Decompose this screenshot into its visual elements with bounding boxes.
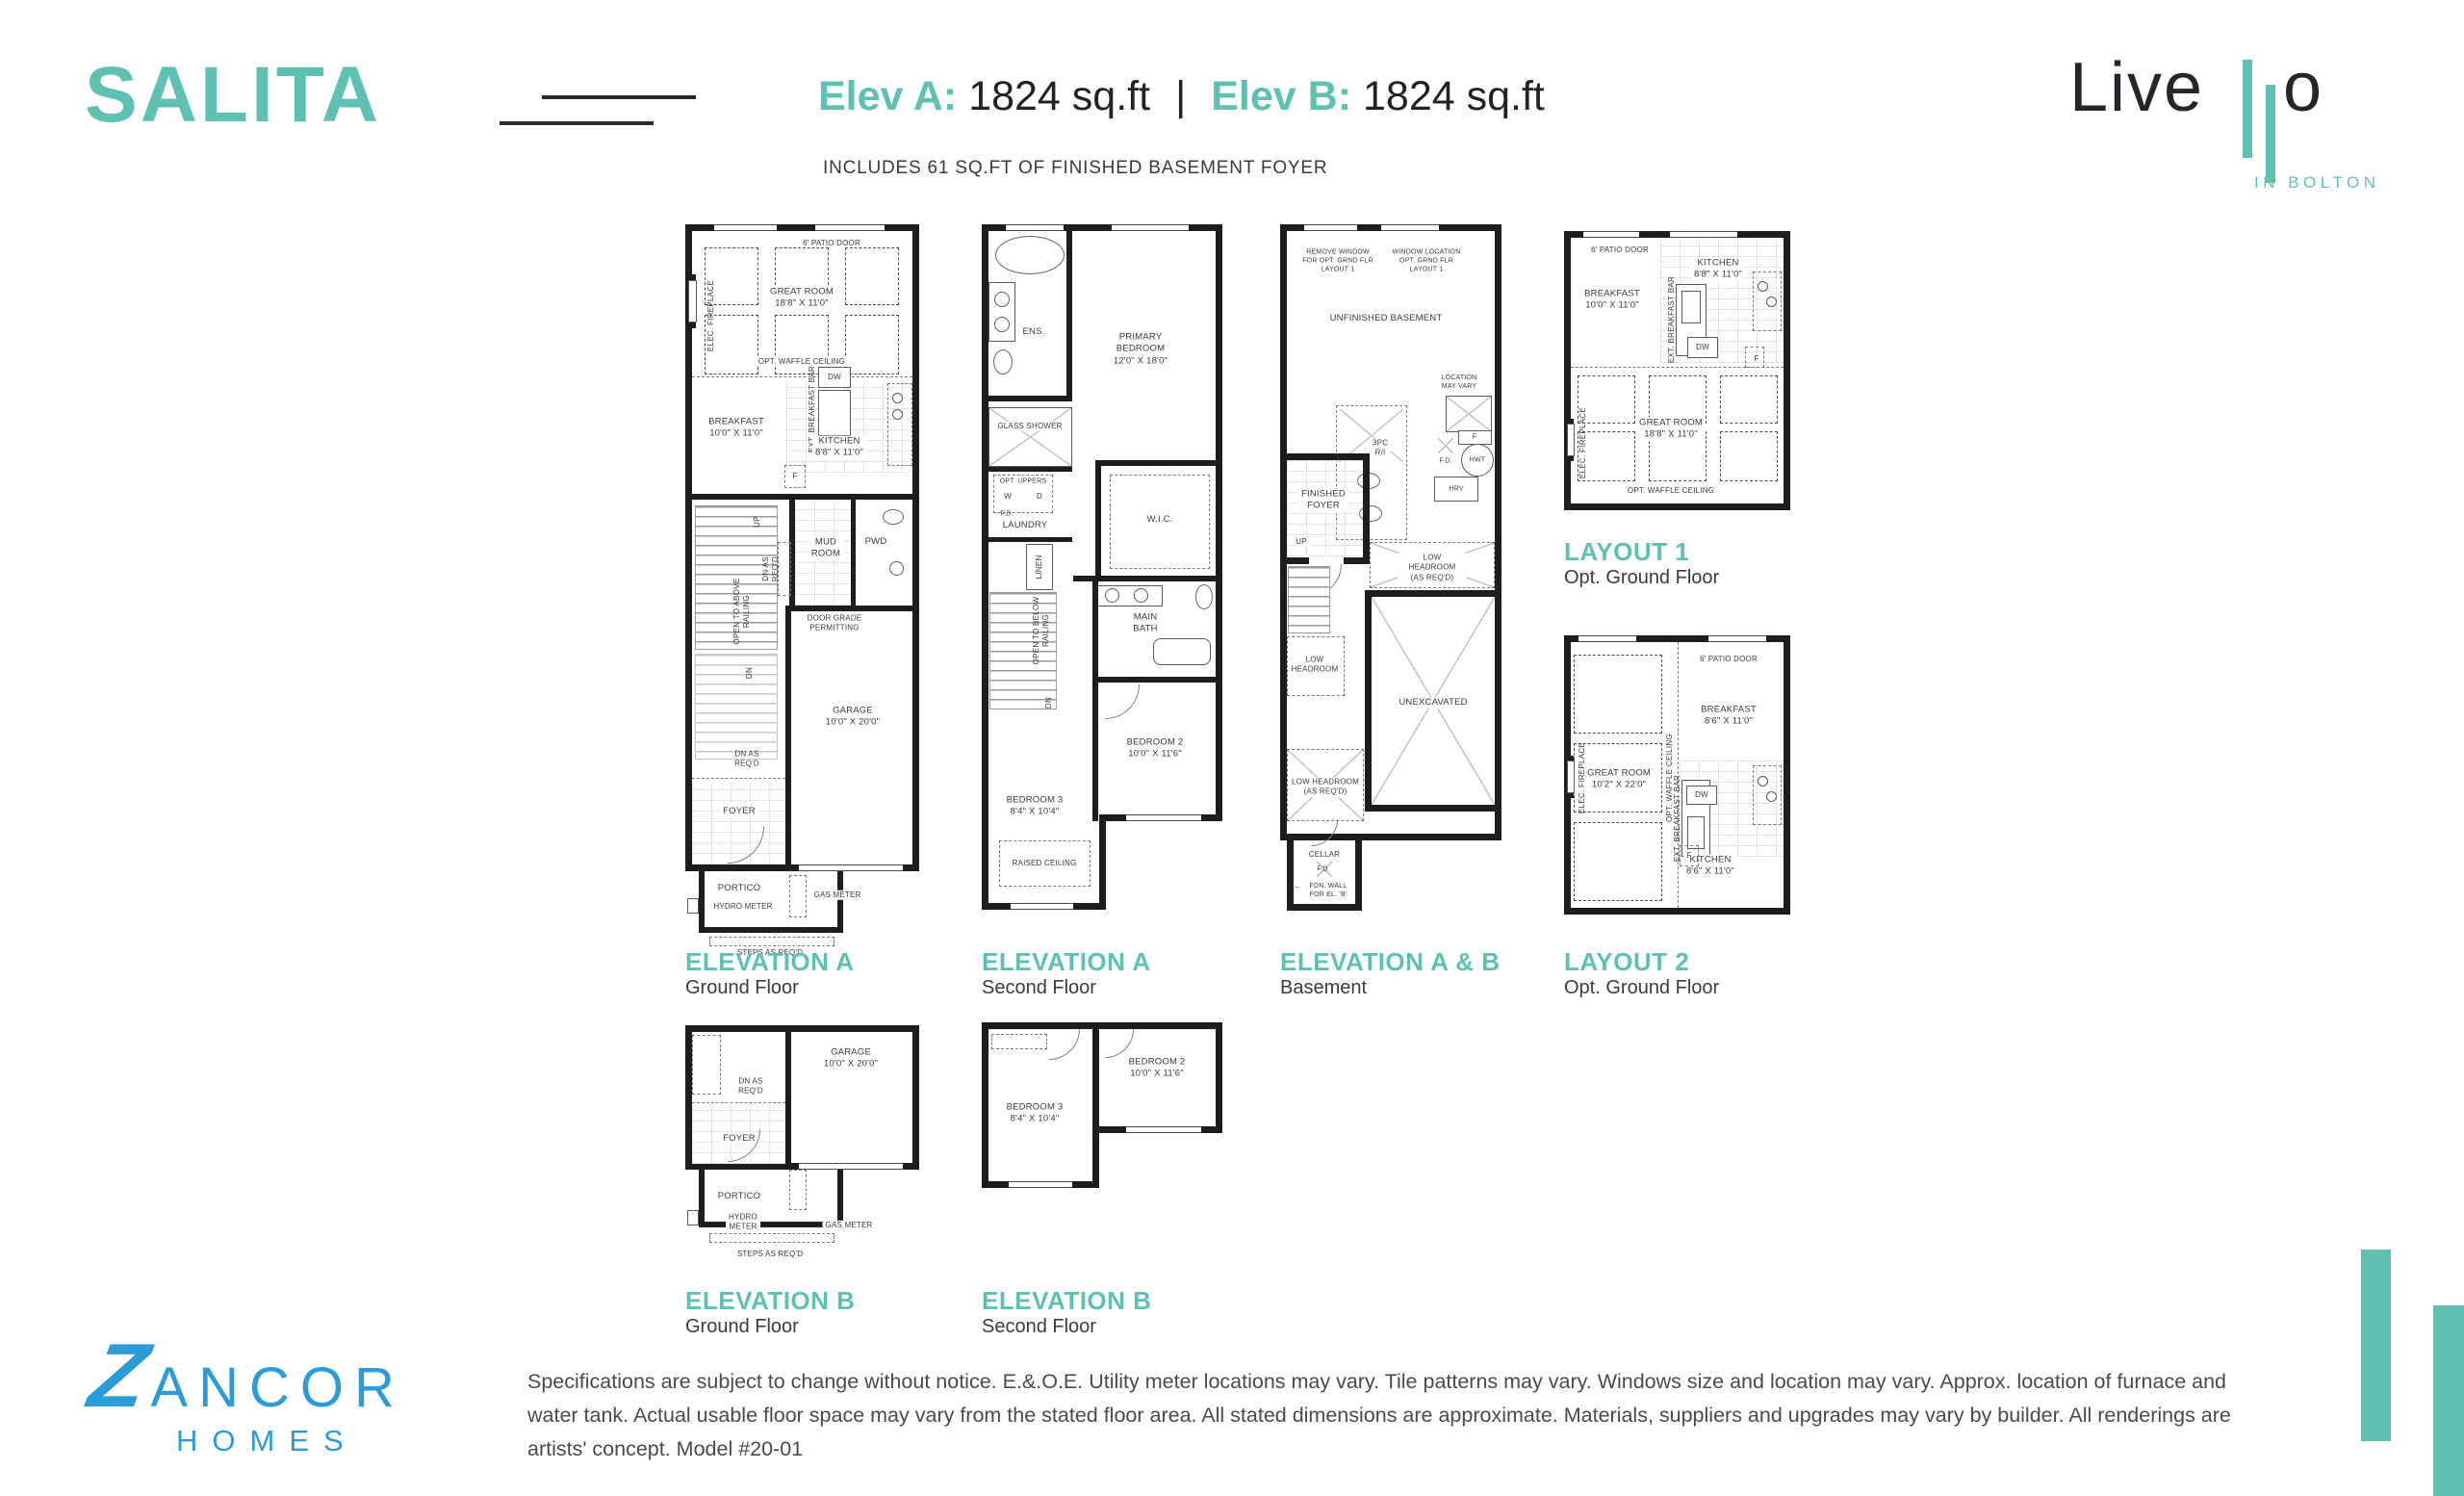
garage-door [799,864,903,871]
dn-label: DN [1044,697,1054,709]
interior-wall [785,1032,791,1170]
caption-basement-sub: Basement [1280,977,1367,999]
interior-wall [982,396,1072,401]
portico-label: PORTICO [718,883,761,894]
caption-layout2-title: LAYOUT 2 [1564,947,1689,977]
toilet-icon [883,509,904,525]
open-to-above-label: OPEN TO ABOVE RAILING [732,579,752,645]
window [1011,903,1073,910]
portico-label: PORTICO [718,1191,761,1202]
window [714,224,777,231]
sink-icon [994,317,1010,332]
left-arrow-icon: ← [1294,882,1301,891]
caption-b-second-sub: Second Floor [982,1316,1096,1338]
sink-icon [892,409,903,420]
waffle-ceiling-square [1649,375,1707,424]
elev-a-label: Elev A: [818,73,957,120]
elev-b-label: Elev B: [1211,73,1351,120]
glass-shower-box [988,407,1072,467]
gas-meter-label: GAS METER [811,890,864,900]
header-rule-bottom [500,121,654,125]
great-room-label: GREAT ROOM 18'8" X 11'0" [767,287,836,311]
caption-a-ground-sub: Ground Floor [685,977,799,999]
interior-wall [1095,460,1222,466]
steps-label: STEPS AS REQ'D [737,1250,803,1259]
bathtub-box [1153,638,1211,665]
hydro-meter-label: HYDRO METER [726,1213,760,1233]
window-location-note: WINDOW LOCATION OPT. GRND FLR LAYOUT 1 [1393,247,1461,273]
elev-b-value: 1824 sq.ft [1363,73,1545,120]
location-may-vary-note: LOCATION MAY VARY [1442,374,1477,391]
finished-foyer-label: FINISHED FOYER [1298,489,1348,513]
teal-accent-bar [2433,1305,2464,1496]
zancor-wordmark: Z ANCOR [91,1340,399,1410]
floorplan-layout1: 6' PATIO DOOR KITCHEN 8'8" X 11'0" BREAK… [1564,231,1790,510]
steps-dashed [709,1233,834,1243]
interior-wall [789,606,919,611]
gas-meter-label: GAS METER [823,1221,876,1230]
ensuite-label: ENS. [1023,326,1045,338]
floor-drain-label: F.D. [1317,864,1329,873]
livello-word-start: Live [2069,48,2204,127]
floorplan-basement: REMOVE WINDOW FOR OPT. GRND FLR LAYOUT 1… [1280,224,1501,917]
floorplan-elevation-a-second: ENS. PRIMARY BEDROOM 12'0" X 18'0" GLASS… [982,224,1222,924]
fridge-label: F [1754,354,1758,364]
waffle-ceiling-label: OPT. WAFFLE CEILING [1625,486,1717,496]
opt-uppers-label: OPT. UPPERS [1000,477,1047,485]
bedroom2-label: BEDROOM 2 10'0" X 11'6" [1129,1057,1186,1081]
interior-wall [982,467,1072,472]
linen-label: LINEN [1035,555,1044,579]
breakfast-bar-label: EXT. BREAKFAST BAR [1667,276,1677,363]
floorplan-elevation-b-ground: GARAGE 10'0" X 20'0" DN AS REQ'D FOYER P… [685,1025,919,1274]
sink-icon [1766,297,1777,307]
patio-door-label: 6' PATIO DOOR [1700,655,1758,664]
floorplan-layout2: 6' PATIO DOOR BREAKFAST 8'6" X 11'0" GRE… [1564,635,1790,915]
zancor-name: ANCOR [150,1365,404,1411]
zancor-z-icon: Z [86,1340,153,1410]
garage-label: GARAGE 10'0" X 20'0" [826,706,880,730]
elec-fireplace-label: ELEC. FIREPLACE [1578,407,1588,478]
bath-rough-in-label: 3PC R/I [1370,439,1391,459]
elec-fireplace-label: ELEC. FIREPLACE [1578,742,1587,813]
livello-logo: Live o IN BOLTON [2069,48,2377,202]
sink-icon [1758,281,1768,292]
window [1112,224,1189,231]
dryer-label: D [1037,492,1042,502]
unfinished-basement-label: UNFINISHED BASEMENT [1330,313,1443,324]
foyer-label: FOYER [720,806,758,817]
caption-b-ground-title: ELEVATION B [685,1286,855,1316]
sink-icon [892,393,903,403]
unexcavated-label: UNEXCAVATED [1396,697,1470,709]
toilet-icon [1195,584,1213,609]
fireplace-box [1567,424,1575,456]
caption-a-second-title: ELEVATION A [982,947,1150,977]
foyer-wall [1280,453,1370,460]
foyer-wall [1344,557,1370,564]
laundry-label: LAUNDRY [1000,520,1051,531]
great-room-label: GREAT ROOM 18'8" X 11'0" [1636,418,1706,442]
pwd-label: PWD [865,536,887,548]
floor-drain-label: F.D. [1000,509,1013,518]
waffle-ceiling-square [705,315,758,374]
closet-dashed [991,1034,1047,1049]
caption-layout1-sub: Opt. Ground Floor [1564,567,1719,589]
stairs [1288,566,1330,633]
exterior-wall [982,224,988,910]
dn-label: DN [745,667,755,679]
breakfast-label: BREAKFAST 10'0" X 11'0" [708,417,764,441]
dn-as-reqd-label: DN AS REQ'D [761,556,781,581]
dishwasher-label: DW [1696,343,1709,352]
waffle-ceiling-square [1720,375,1778,424]
main-bath-label: MAIN BATH [1130,612,1160,636]
dn-as-reqd-label: DN AS REQ'D [734,750,759,770]
basement-note: INCLUDES 61 SQ.FT OF FINISHED BASEMENT F… [823,158,1327,179]
fridge-label: F [792,472,797,481]
waffle-ceiling-square [845,315,899,374]
disclaimer-text: Specifications are subject to change wit… [527,1365,2260,1466]
interior-wall [1098,677,1222,683]
sink-icon [1758,776,1768,787]
window [1670,231,1737,238]
interior-wall [1092,581,1098,821]
livello-bar-icon [2243,60,2252,158]
toilet-icon [993,349,1013,374]
garage-label: GARAGE 10'0" X 20'0" [824,1047,878,1071]
room-divider-dashed [692,376,912,377]
livello-tagline: IN BOLTON [2254,173,2380,193]
window [1006,224,1064,231]
waffle-ceiling-square [705,247,758,305]
foyer-threshold-dashed [692,1102,785,1103]
closet-dashed [692,1035,721,1095]
bedroom3-label: BEDROOM 3 8'4" X 10'4" [1007,795,1064,819]
primary-bedroom-label: PRIMARY BEDROOM 12'0" X 18'0" [1100,331,1182,367]
cooktop-box [1681,291,1701,323]
sink-icon [994,292,1010,307]
breakfast-label: BREAKFAST 10'0" X 11'0" [1581,289,1643,313]
hydro-meter-box [687,1210,699,1225]
exterior-wall [1099,814,1106,910]
bathtub-icon [995,236,1065,274]
hydro-meter-label: HYDRO METER [710,902,775,912]
bedroom3-label: BEDROOM 3 8'4" X 10'4" [1007,1102,1064,1126]
hrv-label: HRV [1449,484,1463,493]
hwt-label: HWT [1470,455,1486,464]
kitchen-island [818,390,851,436]
remove-window-note: REMOVE WINDOW FOR OPT. GRND FLR LAYOUT 1 [1302,247,1373,273]
model-name-title: SALITA [85,50,381,141]
sink-icon [1134,588,1148,603]
cooktop-box [1687,816,1705,849]
sink-icon [889,561,904,576]
garage-door [799,1163,903,1170]
sink-icon [1105,588,1119,603]
window [1381,224,1439,231]
window [1583,231,1639,238]
wic-label: W.I.C. [1146,514,1172,526]
glass-shower-label: GLASS SHOWER [994,422,1065,431]
interior-wall [1095,460,1101,580]
exterior-wall [1216,224,1222,821]
open-to-below-label: OPEN TO BELOW RAILING [1032,597,1051,665]
low-headroom-lower-label: LOW HEADROOM (AS REQ'D) [1289,778,1362,798]
zancor-logo: Z ANCOR HOMES [91,1340,399,1458]
floorplan-elevation-b-second: BEDROOM 2 10'0" X 11'6" BEDROOM 3 8'4" X… [982,1022,1222,1188]
window [1009,1181,1072,1188]
window [1578,635,1636,642]
kitchen-label: KITCHEN 8'8" X 11'0" [812,436,866,460]
floorplan-elevation-a-ground: 6' PATIO DOOR ELEC. FIREPLACE GREAT ROOM… [685,224,919,958]
low-headroom-left-label: LOW HEADROOM [1289,656,1342,676]
washer-label: W [1004,492,1012,502]
furnace-box [1446,396,1492,432]
floorplan-sheet: { "meta": { "accent_teal": "#5ec1b2", "z… [0,0,2464,1496]
bedroom2-label: BEDROOM 2 10'0" X 11'6" [1127,737,1184,761]
header-rule-top [542,95,696,99]
door-grade-label: DOOR GRADE PERMITTING [805,614,865,634]
great-room-label: GREAT ROOM 10'2" X 22'0" [1584,768,1654,792]
patio-door-label: 6' PATIO DOOR [1591,245,1649,255]
window [815,224,885,231]
divider: | [1175,73,1186,120]
stairs-dn [695,654,778,760]
waffle-ceiling-square [1574,655,1662,734]
window [1708,635,1766,642]
caption-basement-title: ELEVATION A & B [1280,947,1501,977]
breakfast-label: BREAKFAST 8'6" X 11'0" [1701,705,1757,729]
foyer-wall [1280,557,1309,564]
up-label: UP [1293,537,1310,547]
fireplace-box [688,280,697,322]
fireplace-box [1567,761,1575,793]
dishwasher-label: DW [1692,790,1711,800]
interior-wall [851,500,856,609]
gas-meter-box [789,875,807,917]
window [1126,1126,1201,1133]
hydro-meter-box [687,898,699,914]
interior-wall [685,494,919,500]
interior-wall [1066,224,1072,396]
door-swing-arc [1105,684,1140,719]
caption-b-second-title: ELEVATION B [982,1286,1151,1316]
foyer-wall [1363,453,1370,564]
gas-meter-box [789,1170,807,1210]
floor-drain-label: F.D. [1439,456,1451,465]
waffle-ceiling-square [845,247,899,305]
steps-dashed [709,937,834,946]
caption-a-second-sub: Second Floor [982,977,1096,999]
fdn-wall-note: FDN. WALL FOR EL. 'B' [1310,882,1347,899]
room-divider-dashed [1571,367,1784,368]
raised-ceiling-label: RAISED CEILING [1010,859,1080,868]
caption-a-ground-title: ELEVATION A [685,947,854,977]
zancor-homes-label: HOMES [176,1424,399,1458]
teal-accent-bar [2361,1250,2391,1441]
floor-drain-mark [1438,438,1453,453]
window [1126,814,1201,821]
foyer-threshold-dashed [692,778,785,779]
fridge-label: F [1686,851,1691,861]
caption-layout2-sub: Opt. Ground Floor [1564,977,1719,999]
livello-bar-icon [2266,85,2275,183]
elev-a-value: 1824 sq.ft [968,73,1150,120]
garage-side-wall [785,606,791,871]
waffle-ceiling-square [1720,431,1778,481]
waffle-ceiling-label: OPT. WAFFLE CEILING [756,357,848,367]
dn-as-reqd-label: DN AS REQ'D [738,1077,763,1097]
mud-room-label: MUD ROOM [808,537,843,561]
window [1304,224,1357,231]
cellar-label: CELLAR [1309,850,1340,860]
furnace-label: F [1473,432,1476,441]
waffle-ceiling-square [1574,822,1662,901]
caption-b-ground-sub: Ground Floor [685,1316,799,1338]
kitchen-label: KITCHEN 8'8" X 11'0" [1691,258,1745,282]
caption-layout1-title: LAYOUT 1 [1564,537,1689,567]
up-label: UP [753,516,762,528]
dishwasher-label: DW [828,373,841,382]
interior-wall [982,537,1072,542]
livello-word-end: o [2283,48,2322,127]
sink-icon [1766,791,1777,802]
elevation-sqft-row: Elev A: 1824 sq.ft | Elev B: 1824 sq.ft [818,73,1545,120]
low-headroom-upper-label: LOW HEADROOM (AS REQ'D) [1398,553,1467,582]
